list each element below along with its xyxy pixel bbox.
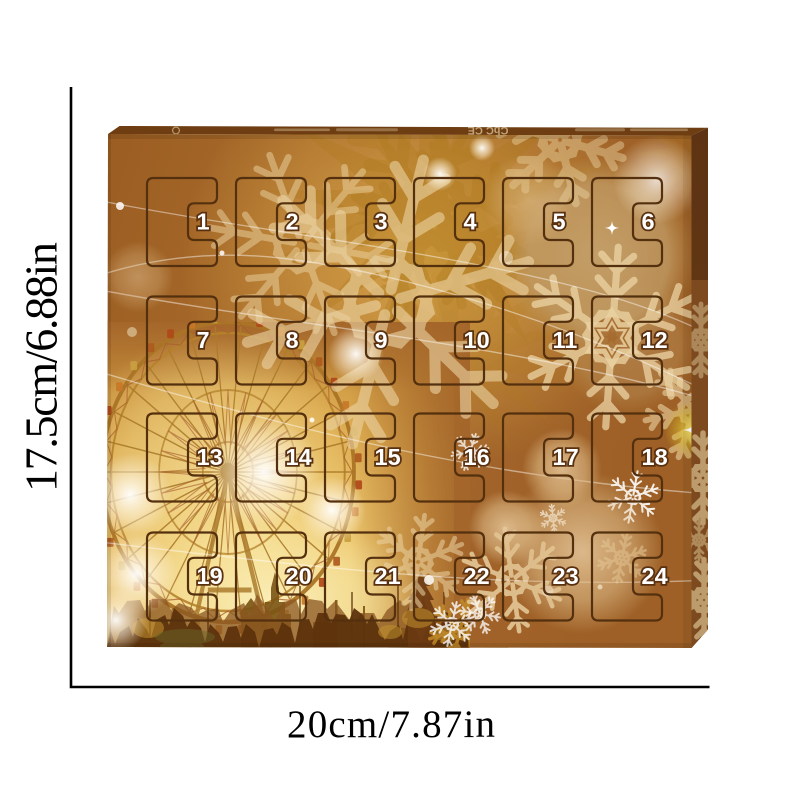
- svg-text:CbC CE: CbC CE: [468, 124, 509, 136]
- svg-text:17.5cm/6.88in: 17.5cm/6.88in: [16, 242, 67, 492]
- svg-text:11: 11: [553, 327, 578, 353]
- svg-text:13: 13: [197, 444, 223, 470]
- svg-text:23: 23: [553, 563, 579, 589]
- svg-text:10: 10: [464, 327, 490, 353]
- svg-text:14: 14: [286, 444, 312, 470]
- svg-text:12: 12: [642, 327, 668, 353]
- svg-text:20: 20: [286, 563, 312, 589]
- svg-text:22: 22: [464, 563, 490, 589]
- svg-text:24: 24: [642, 563, 668, 589]
- svg-text:21: 21: [375, 563, 401, 589]
- svg-text:2: 2: [286, 209, 299, 235]
- svg-text:5: 5: [553, 209, 566, 235]
- svg-text:18: 18: [642, 444, 668, 470]
- svg-text:17: 17: [553, 444, 579, 470]
- svg-text:4: 4: [464, 209, 477, 235]
- svg-text:6: 6: [642, 209, 655, 235]
- svg-text:19: 19: [197, 563, 223, 589]
- svg-text:3: 3: [375, 209, 388, 235]
- svg-text:1: 1: [197, 209, 210, 235]
- svg-text:8: 8: [286, 327, 299, 353]
- svg-text:7: 7: [197, 327, 210, 353]
- svg-text:9: 9: [375, 327, 388, 353]
- svg-text:16: 16: [464, 444, 490, 470]
- svg-text:15: 15: [375, 444, 401, 470]
- svg-text:20cm/7.87in: 20cm/7.87in: [287, 703, 495, 746]
